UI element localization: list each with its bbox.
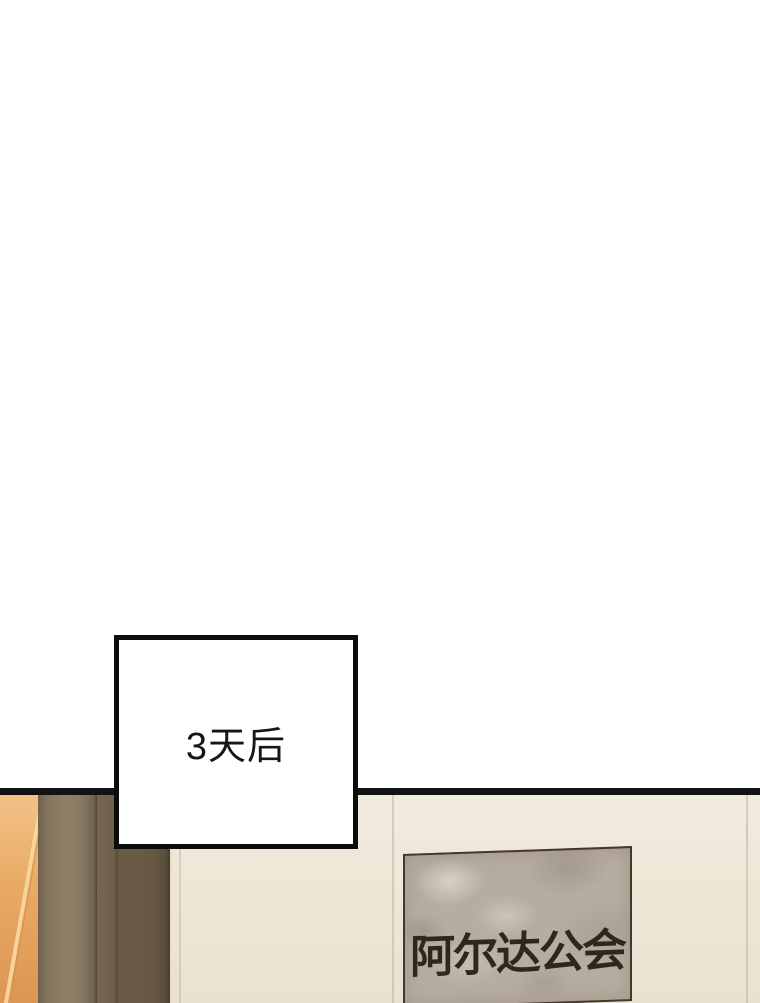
caption-text: 3天后 [186, 715, 286, 770]
caption-box: 3天后 [114, 635, 358, 849]
webtoon-page: 阿尔达公会 3天后 [0, 0, 760, 1003]
guild-sign-text: 阿尔达公会 [405, 928, 630, 981]
wall-seam-middle [392, 795, 394, 1003]
guild-sign-plaque: 阿尔达公会 [403, 846, 632, 1003]
door-pillar-outer [38, 795, 97, 1003]
brick-wall [0, 795, 38, 1003]
wall-seam-right [746, 795, 748, 1003]
